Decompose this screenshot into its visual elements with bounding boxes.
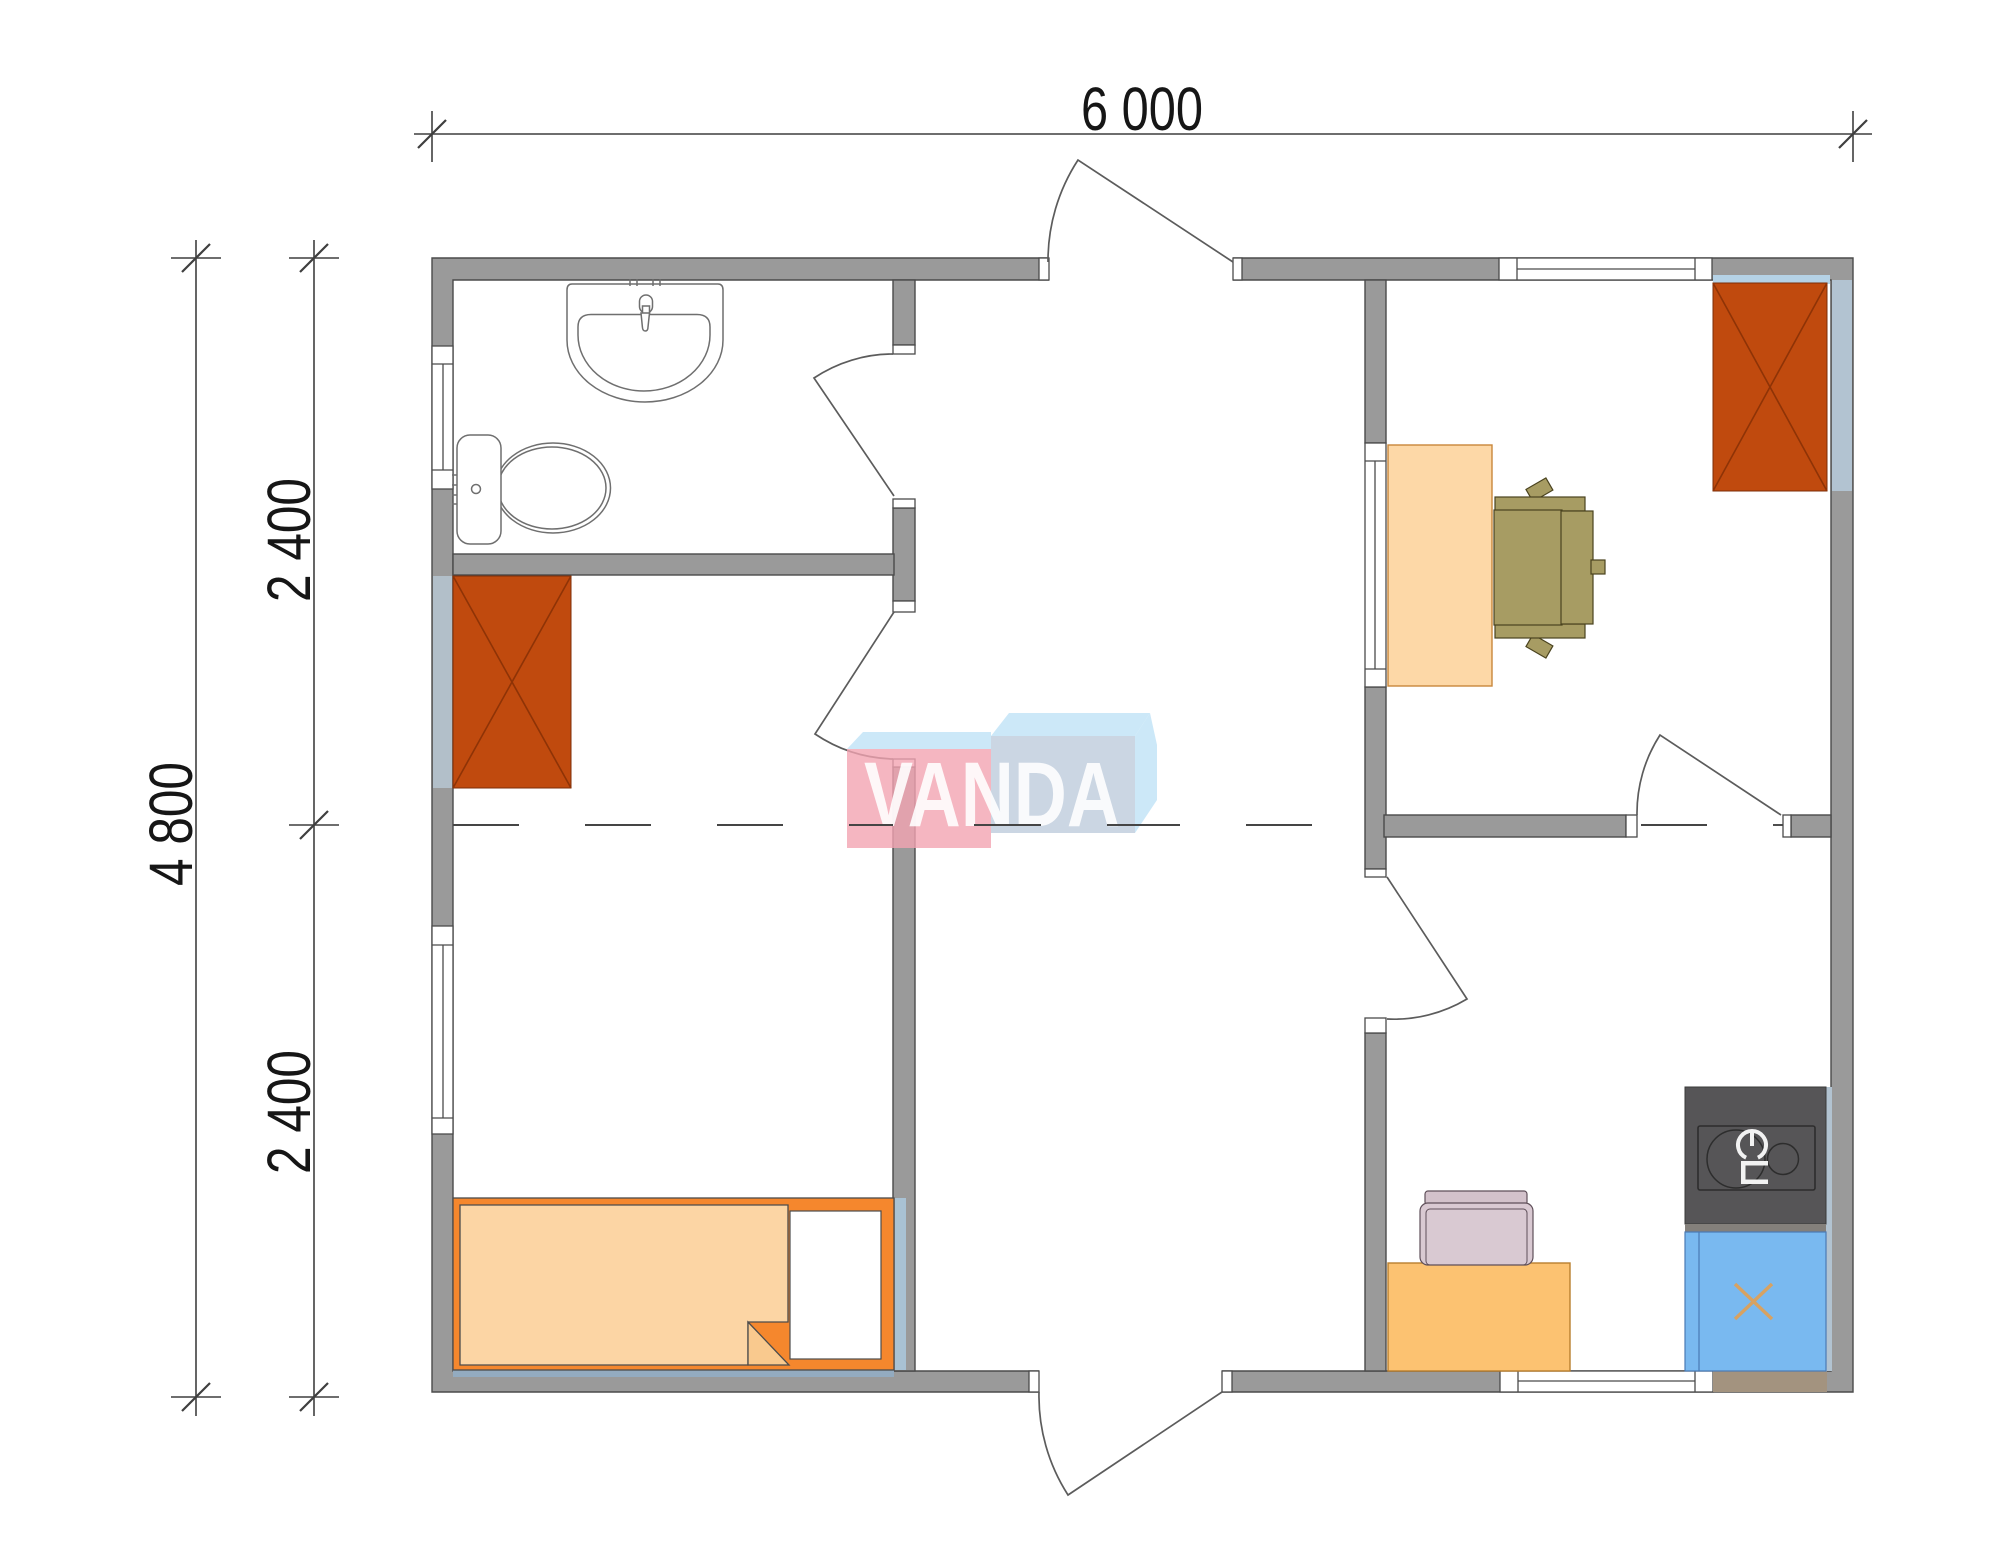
svg-text:2 400: 2 400 — [255, 1050, 323, 1174]
svg-text:6 000: 6 000 — [1081, 75, 1203, 143]
svg-text:VANDA: VANDA — [864, 744, 1120, 846]
svg-text:2 400: 2 400 — [255, 478, 323, 602]
svg-text:4 800: 4 800 — [137, 762, 205, 886]
